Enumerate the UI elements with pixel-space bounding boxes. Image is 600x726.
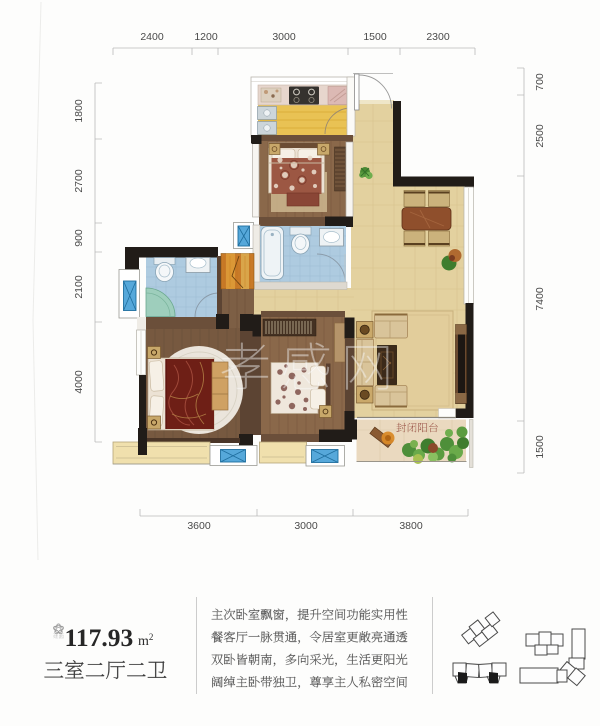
svg-text:2500: 2500 bbox=[534, 124, 546, 148]
svg-text:7400: 7400 bbox=[534, 287, 546, 311]
svg-text:3800: 3800 bbox=[399, 520, 423, 532]
svg-text:3600: 3600 bbox=[187, 520, 211, 532]
svg-text:1200: 1200 bbox=[194, 31, 218, 43]
svg-text:m2: m2 bbox=[138, 632, 153, 649]
svg-text:2400: 2400 bbox=[140, 31, 164, 43]
svg-text:3000: 3000 bbox=[272, 31, 296, 43]
svg-text:2700: 2700 bbox=[73, 169, 85, 193]
svg-text:1500: 1500 bbox=[534, 435, 546, 459]
svg-text:1800: 1800 bbox=[73, 99, 85, 123]
svg-text:2300: 2300 bbox=[426, 31, 450, 43]
svg-text:1500: 1500 bbox=[363, 31, 387, 43]
svg-text:117.93: 117.93 bbox=[65, 623, 134, 652]
svg-text:3000: 3000 bbox=[294, 520, 318, 532]
svg-text:2100: 2100 bbox=[73, 275, 85, 299]
svg-text:4000: 4000 bbox=[73, 370, 85, 394]
svg-text:900: 900 bbox=[73, 229, 85, 247]
svg-text:700: 700 bbox=[534, 73, 546, 91]
